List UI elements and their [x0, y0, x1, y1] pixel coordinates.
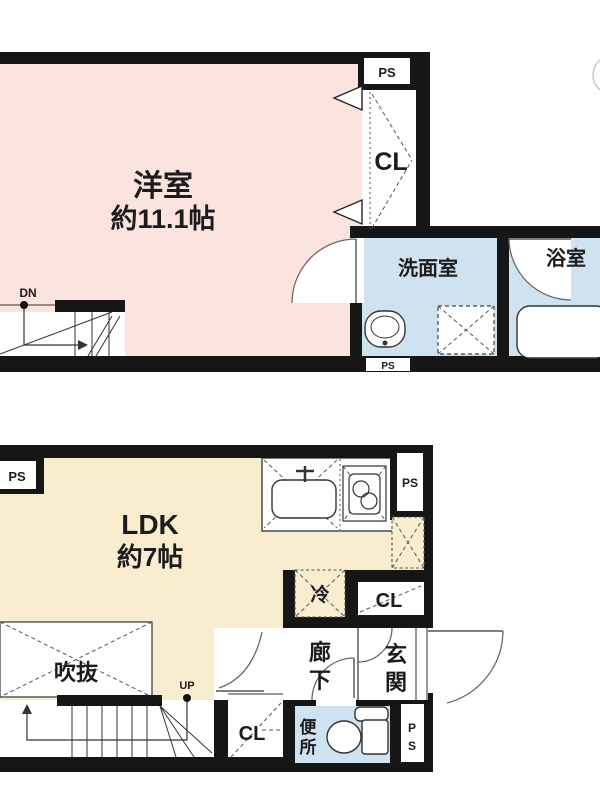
floor-plan-page: PS — [0, 0, 600, 800]
service-hatch-square — [392, 517, 424, 568]
toilet-door-gap — [316, 693, 356, 706]
ldk-label: LDK — [121, 509, 179, 540]
compass-icon — [593, 56, 600, 94]
kitchen-counter — [262, 458, 398, 531]
floor1-plan: PS PS 冷 CL — [0, 445, 503, 772]
corridor-label-2: 下 — [309, 668, 331, 693]
bathroom-label: 浴室 — [546, 246, 586, 270]
toilet-label-1: 便 — [300, 717, 318, 737]
ldk-size-label: 約7帖 — [117, 542, 183, 572]
closet-label: CL — [374, 148, 407, 176]
stove-icon — [343, 466, 386, 521]
ps-top-left-label: PS — [8, 469, 26, 484]
sink-icon — [365, 311, 405, 347]
closet-mid-label: CL — [376, 590, 403, 612]
entrance-label-2: 関 — [385, 670, 407, 695]
washroom-label: 洗面室 — [398, 256, 458, 280]
ps-top-right-label: PS — [402, 476, 418, 490]
closet-bottom-label: CL — [239, 723, 266, 745]
corridor-label-1: 廊 — [309, 640, 331, 665]
stairs-up — [22, 694, 212, 757]
corridor-area — [214, 628, 358, 700]
void-label: 吹抜 — [54, 660, 99, 685]
bedroom-size-label: 約11.1帖 — [110, 203, 215, 234]
ps-bottom-right-label-1: P — [408, 721, 416, 735]
floor-plan-drawing: PS — [0, 0, 600, 800]
bedroom-label: 洋室 — [133, 169, 193, 203]
ps-top-label: PS — [378, 65, 396, 80]
washing-machine-pan — [438, 306, 494, 354]
toilet-label-2: 所 — [300, 738, 317, 757]
down-label: DN — [19, 286, 36, 300]
fridge-label: 冷 — [310, 583, 329, 606]
bathtub-icon — [517, 306, 600, 358]
floor2-plan: PS — [0, 52, 600, 372]
front-door — [428, 631, 503, 703]
ps-bottom-label: PS — [381, 361, 395, 372]
entrance-label-1: 玄 — [385, 642, 407, 667]
ps-bottom-right-label-2: S — [408, 739, 416, 753]
up-label: UP — [179, 680, 194, 692]
